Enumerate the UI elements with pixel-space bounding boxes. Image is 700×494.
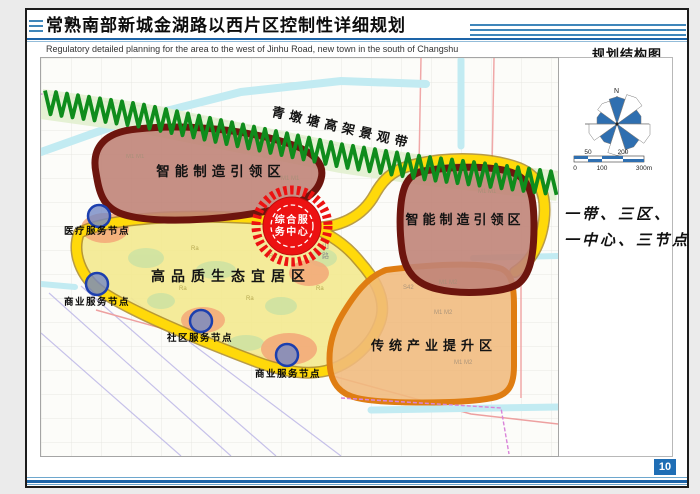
svg-text:Ra: Ra (191, 246, 199, 252)
scale-label-0: 0 (573, 165, 577, 172)
scale-label-50: 50 (584, 149, 592, 156)
scale-bar: 50 200 0 100 300m (570, 146, 670, 176)
svg-text:Ra: Ra (316, 286, 324, 292)
badge-label-line2: 务中心 (275, 225, 310, 238)
svg-text:S42: S42 (403, 285, 414, 291)
north-label: N (614, 88, 619, 95)
svg-text:Ra: Ra (246, 296, 254, 302)
header-stripes-right (470, 24, 686, 36)
badge-label-line1: 综合服 (275, 213, 310, 226)
planning-map: M1 M1 M1 M1 M1 M1 Ra Ra Ra Ra Ra S42 M1 … (41, 58, 558, 456)
zone-eco-living-label: 高品质生态宜居区 (151, 268, 311, 284)
badge-disc (263, 197, 321, 255)
scale-label-100: 100 (597, 165, 608, 172)
page-title: 常熟南部新城金湖路以西片区控制性详细规划 (46, 11, 406, 36)
page-number: 10 (654, 459, 676, 475)
structure-summary: 一带、三区、 一中心、三节点 (564, 202, 694, 254)
node-commercial2-label: 商业服务节点 (255, 368, 321, 380)
page-subtitle: Regulatory detailed planning for the are… (46, 44, 458, 54)
footer-stripes (27, 477, 687, 485)
svg-text:M1 M2: M1 M2 (434, 310, 453, 316)
node-community-label: 社区服务节点 (166, 332, 233, 344)
svg-text:路: 路 (322, 251, 329, 260)
summary-line2: 一中心、三节点 (564, 228, 694, 254)
node-medical-circle (88, 205, 110, 227)
node-commercial1-label: 商业服务节点 (64, 296, 130, 308)
svg-text:Ra: Ra (179, 286, 187, 292)
svg-text:M1 M2: M1 M2 (439, 280, 458, 286)
svg-text:M1 M1: M1 M1 (478, 189, 497, 195)
node-commercial1-circle (86, 273, 108, 295)
header-stripes-left (29, 20, 43, 32)
summary-line1: 一带、三区、 (564, 202, 694, 228)
scale-label-300m: 300m (636, 165, 652, 172)
zone-traditional-industry-label: 传统产业提升区 (370, 338, 497, 353)
zone-smart-east-label: 智能制造引领区 (405, 212, 524, 227)
svg-text:M1 M2: M1 M2 (454, 360, 473, 366)
svg-text:M1 M1: M1 M1 (126, 154, 145, 160)
node-medical-label: 医疗服务节点 (64, 225, 130, 237)
title-rule (27, 38, 687, 43)
zone-smart-west-label: 智能制造引领区 (156, 163, 286, 179)
map-panel: M1 M1 M1 M1 M1 M1 Ra Ra Ra Ra Ra S42 M1 … (40, 57, 559, 457)
node-commercial2-circle (276, 344, 298, 366)
scale-label-200: 200 (618, 149, 629, 156)
node-community-circle (190, 310, 212, 332)
